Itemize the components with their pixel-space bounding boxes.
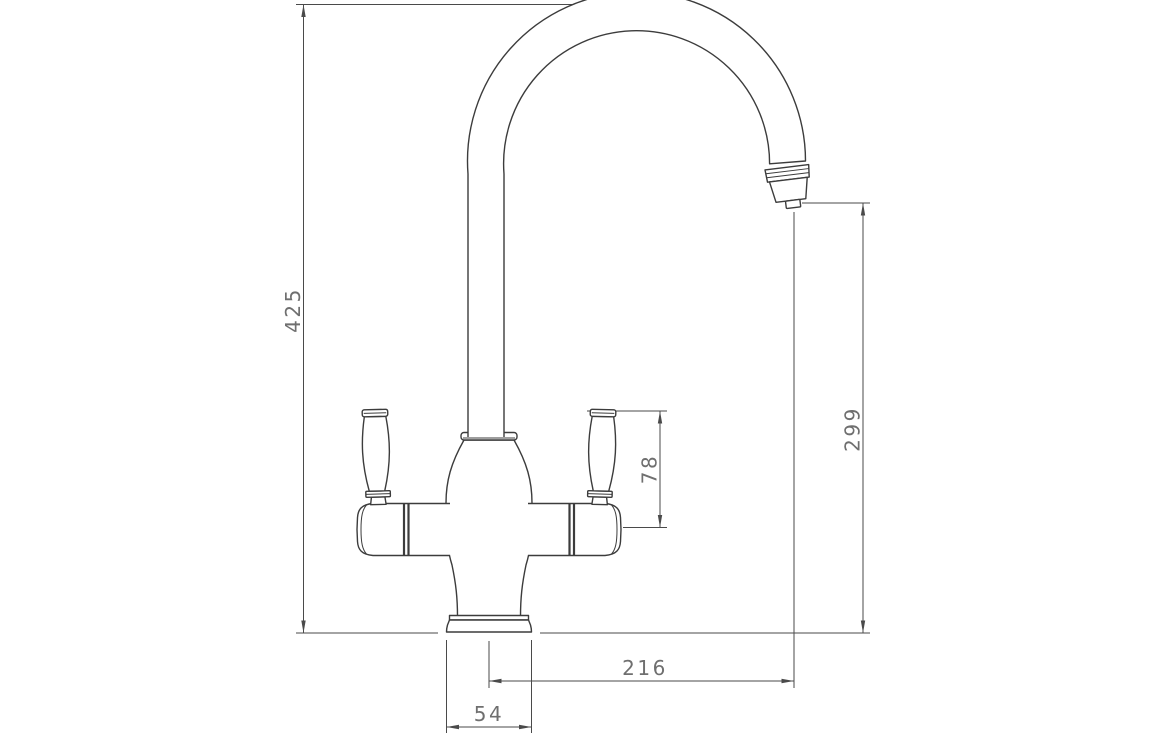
dimension-label-base-width: 54 <box>474 702 504 726</box>
technical-drawing: 425 299 78 216 54 <box>0 0 1156 742</box>
handle-right <box>587 409 616 505</box>
dimension-label-spout-reach: 216 <box>622 656 668 680</box>
valve-body-left <box>357 504 450 556</box>
valve-body-right <box>528 504 621 556</box>
arrowhead-down-icon <box>301 621 305 634</box>
handle-stem <box>370 497 386 505</box>
dimension-spout-outlet-height: 299 <box>802 203 870 633</box>
handle-grip <box>362 416 391 491</box>
arrowhead-right-icon <box>782 679 795 683</box>
arrowhead-left-icon <box>489 679 502 683</box>
dimension-label-spout-outlet-height: 299 <box>841 406 865 452</box>
faucet-body <box>446 440 533 617</box>
dimension-label-handle-height: 78 <box>638 454 662 484</box>
spout-nozzle <box>765 165 814 211</box>
arrowhead-up-icon <box>301 5 305 18</box>
spout-gooseneck <box>467 0 805 437</box>
dimension-label-overall-height: 425 <box>281 287 305 333</box>
dimension-spout-reach: 216 <box>489 212 794 688</box>
nozzle-body <box>769 177 809 202</box>
arrowhead-up-icon <box>861 203 865 216</box>
arrowhead-up-icon <box>658 411 662 424</box>
base-flange <box>447 616 532 633</box>
arrowhead-down-icon <box>658 515 662 528</box>
arrowhead-right-icon <box>519 725 532 729</box>
handle-left <box>361 409 390 505</box>
arrowhead-down-icon <box>861 621 865 634</box>
drawing-canvas: 425 299 78 216 54 <box>0 0 1156 742</box>
arrowhead-left-icon <box>447 725 460 729</box>
faucet-outline <box>357 0 814 632</box>
nozzle-outlet <box>785 199 800 208</box>
